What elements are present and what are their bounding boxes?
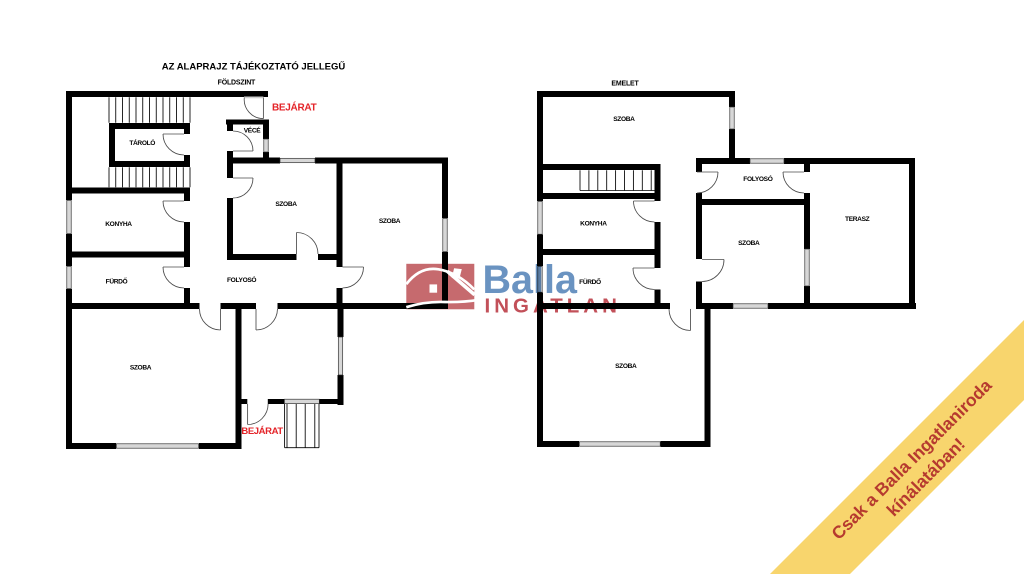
svg-text:KONYHA: KONYHA — [105, 221, 132, 228]
svg-text:VÉCÉ: VÉCÉ — [244, 126, 262, 135]
svg-text:TÁROLÓ: TÁROLÓ — [129, 138, 155, 147]
svg-text:SZOBA: SZOBA — [130, 365, 152, 372]
svg-text:SZOBA: SZOBA — [615, 363, 637, 370]
svg-text:FÜRDŐ: FÜRDŐ — [106, 277, 128, 286]
svg-text:FOLYOSÓ: FOLYOSÓ — [743, 174, 772, 183]
svg-text:FOLYOSÓ: FOLYOSÓ — [227, 275, 256, 284]
svg-text:FÜRDŐ: FÜRDŐ — [579, 277, 601, 286]
svg-text:FÖLDSZINT: FÖLDSZINT — [218, 78, 256, 87]
svg-text:SZOBA: SZOBA — [738, 240, 760, 247]
svg-text:SZOBA: SZOBA — [613, 116, 635, 123]
svg-text:EMELET: EMELET — [611, 80, 639, 87]
svg-text:BEJÁRAT: BEJÁRAT — [272, 100, 317, 113]
svg-text:SZOBA: SZOBA — [275, 201, 297, 208]
svg-text:INGATLAN: INGATLAN — [485, 295, 621, 318]
svg-text:KONYHA: KONYHA — [580, 221, 607, 228]
svg-text:SZOBA: SZOBA — [379, 218, 401, 225]
svg-text:BEJÁRAT: BEJÁRAT — [241, 426, 283, 437]
svg-text:AZ ALAPRAJZ TÁJÉKOZTATÓ JELLEG: AZ ALAPRAJZ TÁJÉKOZTATÓ JELLEGŰ — [162, 61, 346, 73]
svg-text:TERASZ: TERASZ — [845, 216, 870, 223]
